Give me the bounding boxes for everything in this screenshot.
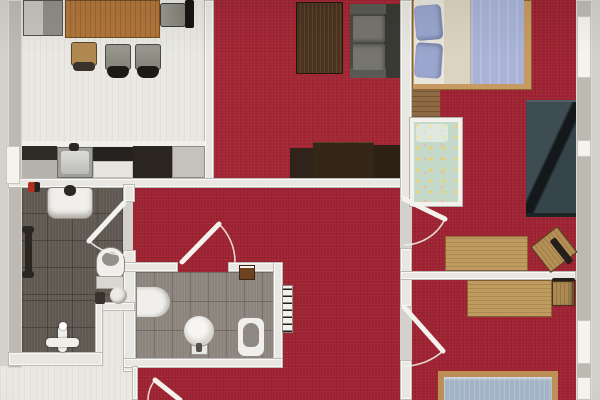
bedroom-door-arc xyxy=(404,219,445,245)
hallway-door-arc xyxy=(219,224,235,262)
door-swings-overlay xyxy=(0,0,600,400)
entry-door-arc xyxy=(148,380,155,400)
kids-room-door-panel xyxy=(404,307,443,351)
hallway-door-panel xyxy=(182,224,219,262)
bedroom-door-panel xyxy=(404,199,445,219)
bathroom-door-panel xyxy=(89,203,124,241)
floor-plan-photo xyxy=(0,0,600,400)
entry-door-panel xyxy=(155,380,180,400)
bathroom-door-arc xyxy=(89,241,124,255)
kids-room-door-arc xyxy=(404,351,443,366)
